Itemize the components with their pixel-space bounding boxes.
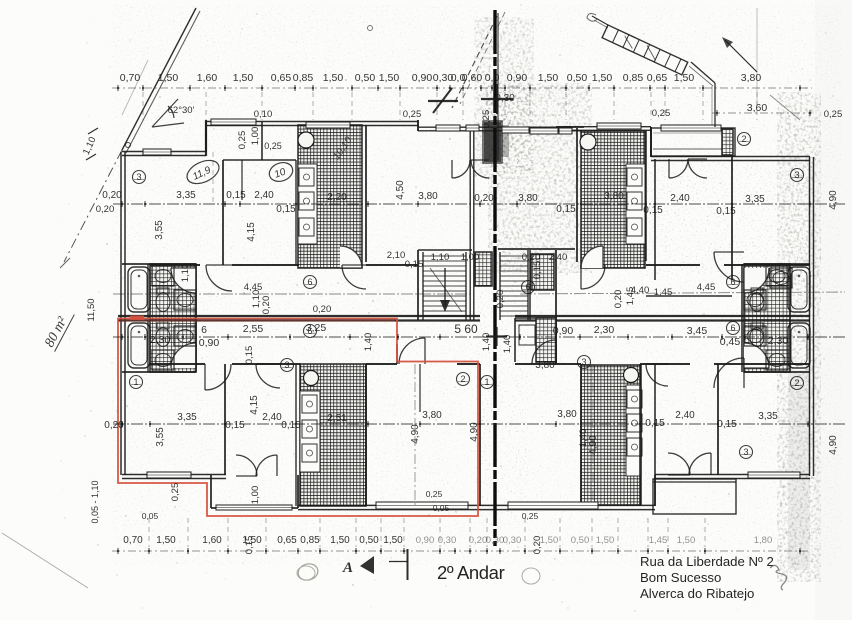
svg-text:1,50: 1,50 (323, 72, 344, 84)
svg-text:3,35: 3,35 (758, 411, 778, 422)
svg-text:4,90: 4,90 (410, 424, 421, 444)
svg-text:0,15: 0,15 (405, 259, 424, 270)
svg-text:1: 1 (133, 377, 138, 387)
svg-text:1,50: 1,50 (538, 72, 559, 84)
svg-text:0,20: 0,20 (102, 190, 122, 201)
svg-text:1,00: 1,00 (250, 127, 261, 146)
svg-text:1,50: 1,50 (330, 535, 350, 546)
svg-text:6: 6 (525, 282, 530, 292)
svg-text:0,25: 0,25 (652, 108, 671, 119)
svg-text:0,15: 0,15 (276, 204, 296, 215)
svg-text:4,90: 4,90 (469, 422, 480, 442)
svg-text:3,55: 3,55 (154, 220, 165, 240)
svg-text:2,20: 2,20 (327, 192, 347, 203)
svg-text:3,80: 3,80 (741, 72, 762, 84)
svg-text:2: 2 (741, 134, 746, 144)
svg-text:3,55: 3,55 (155, 427, 166, 447)
svg-text:0,25: 0,25 (481, 110, 492, 129)
svg-text:2,30: 2,30 (150, 334, 171, 346)
svg-text:0,45: 0,45 (720, 336, 741, 348)
svg-text:2,40: 2,40 (262, 412, 282, 423)
svg-text:0,20: 0,20 (96, 204, 115, 215)
svg-text:1,80: 1,80 (754, 535, 773, 546)
svg-text:1,50: 1,50 (674, 72, 695, 84)
svg-text:1,50: 1,50 (592, 72, 613, 84)
svg-text:Alverca do Ribatejo: Alverca do Ribatejo (640, 586, 754, 601)
svg-text:0,15: 0,15 (244, 346, 255, 365)
svg-text:2,30: 2,30 (768, 335, 789, 347)
svg-text:2,40: 2,40 (254, 190, 274, 201)
svg-text:2º Andar: 2º Andar (437, 562, 505, 583)
svg-text:0,90: 0,90 (416, 535, 435, 546)
svg-text:3,80: 3,80 (418, 191, 438, 202)
svg-text:2: 2 (794, 378, 799, 388)
svg-text:0,15: 0,15 (244, 536, 255, 555)
svg-text:0,20: 0,20 (313, 304, 332, 315)
svg-text:0,90: 0,90 (507, 72, 528, 84)
svg-text:0,20: 0,20 (104, 420, 124, 431)
svg-text:0,25: 0,25 (237, 131, 248, 150)
svg-text:4,45: 4,45 (697, 282, 716, 293)
svg-text:0,15: 0,15 (281, 420, 301, 431)
svg-text:A: A (342, 560, 353, 576)
svg-text:0,50: 0,50 (359, 535, 379, 546)
svg-text:1,40: 1,40 (363, 333, 374, 352)
svg-text:0,25: 0,25 (522, 511, 539, 521)
svg-text:0,70: 0,70 (123, 535, 143, 546)
svg-text:0,85: 0,85 (623, 72, 644, 84)
svg-text:2,55: 2,55 (243, 323, 264, 335)
svg-text:3,80: 3,80 (535, 360, 555, 371)
svg-text:1,10: 1,10 (431, 252, 450, 263)
svg-text:2,30: 2,30 (594, 324, 615, 336)
svg-text:6: 6 (730, 277, 735, 287)
svg-text:3,35: 3,35 (745, 194, 765, 205)
svg-text:0,50: 0,50 (355, 72, 376, 84)
svg-text:1,60: 1,60 (197, 72, 218, 84)
svg-text:0,15: 0,15 (556, 204, 576, 215)
svg-text:3,80: 3,80 (604, 191, 624, 202)
svg-text:Rua da Liberdade Nº 2: Rua da Liberdade Nº 2 (640, 554, 774, 569)
svg-text:3: 3 (136, 172, 141, 182)
svg-text:0,15: 0,15 (225, 420, 245, 431)
svg-text:3,35: 3,35 (176, 190, 196, 201)
svg-text:0,05: 0,05 (142, 511, 159, 521)
svg-text:0,60: 0,60 (462, 72, 483, 84)
svg-text:1,60: 1,60 (202, 535, 222, 546)
svg-text:0,30: 0,30 (486, 535, 505, 546)
svg-text:1,00: 1,00 (250, 486, 261, 505)
svg-text:11,50: 11,50 (86, 298, 97, 321)
svg-text:2,40: 2,40 (670, 193, 690, 204)
svg-text:0,85: 0,85 (293, 72, 314, 84)
svg-text:3: 3 (581, 357, 586, 367)
svg-text:1,00: 1,00 (461, 252, 480, 263)
svg-text:0,20: 0,20 (261, 296, 272, 315)
svg-text:0,25: 0,25 (170, 483, 181, 502)
svg-text:0,20: 0,20 (613, 290, 624, 309)
svg-text:1,50: 1,50 (156, 535, 176, 546)
svg-text:1,50: 1,50 (233, 72, 254, 84)
svg-text:1,50: 1,50 (596, 535, 615, 546)
svg-text:0,50: 0,50 (567, 72, 588, 84)
svg-text:0,15: 0,15 (226, 190, 246, 201)
svg-text:0,15: 0,15 (532, 261, 543, 280)
svg-text:1,50: 1,50 (379, 72, 400, 84)
svg-text:0,90: 0,90 (199, 337, 220, 349)
svg-text:1,50: 1,50 (158, 72, 179, 84)
svg-text:2,10: 2,10 (387, 250, 406, 261)
svg-text:0,50: 0,50 (571, 535, 590, 546)
svg-text:6: 6 (730, 323, 735, 333)
svg-text:0,20: 0,20 (474, 193, 494, 204)
svg-text:4,15: 4,15 (249, 395, 260, 415)
svg-text:4,90: 4,90 (828, 190, 839, 210)
svg-text:4,50: 4,50 (395, 180, 406, 200)
svg-text:0,20: 0,20 (532, 536, 543, 555)
svg-text:4,15: 4,15 (246, 222, 257, 242)
svg-text:1: 1 (484, 377, 489, 387)
svg-text:3: 3 (794, 170, 799, 180)
svg-text:2,51: 2,51 (327, 413, 347, 424)
svg-text:0,65: 0,65 (647, 72, 668, 84)
svg-text:3,35: 3,35 (177, 412, 197, 423)
svg-text:6: 6 (201, 324, 207, 336)
svg-text:1,40: 1,40 (578, 429, 589, 448)
svg-text:3,80: 3,80 (557, 409, 577, 420)
svg-text:3: 3 (284, 360, 289, 370)
svg-text:3,80: 3,80 (518, 193, 538, 204)
svg-text:0,65: 0,65 (271, 72, 292, 84)
svg-text:0,20: 0,20 (469, 535, 488, 546)
svg-text:1,40: 1,40 (481, 333, 492, 352)
svg-text:3,80: 3,80 (422, 410, 442, 421)
svg-text:Bom Sucesso: Bom Sucesso (640, 570, 721, 585)
svg-text:0,30: 0,30 (503, 535, 522, 546)
svg-text:5 60: 5 60 (454, 322, 478, 336)
svg-text:1,10: 1,10 (180, 264, 191, 283)
svg-text:0,70: 0,70 (120, 72, 141, 84)
svg-text:0,25: 0,25 (426, 489, 443, 499)
svg-text:2,40: 2,40 (549, 252, 568, 263)
svg-text:0,30: 0,30 (438, 535, 457, 546)
svg-text:0,0: 0,0 (485, 72, 500, 84)
svg-text:1,45: 1,45 (649, 535, 668, 546)
svg-text:4,90: 4,90 (828, 435, 839, 455)
svg-text:0,15: 0,15 (716, 206, 736, 217)
svg-text:6: 6 (307, 277, 312, 287)
svg-text:2: 2 (460, 374, 465, 384)
svg-text:0,05 - 1,10: 0,05 - 1,10 (90, 480, 100, 523)
svg-text:1,40: 1,40 (502, 335, 513, 354)
svg-text:0,90: 0,90 (412, 72, 433, 84)
svg-text:3,45: 3,45 (687, 325, 708, 337)
svg-text:6: 6 (307, 326, 312, 336)
svg-text:0,25: 0,25 (403, 109, 422, 120)
svg-text:0,15: 0,15 (717, 419, 737, 430)
svg-text:0,25: 0,25 (824, 109, 843, 120)
svg-text:1,50: 1,50 (677, 535, 696, 546)
svg-text:0,65: 0,65 (277, 535, 297, 546)
svg-text:4,90: 4,90 (588, 435, 599, 455)
svg-text:0,05: 0,05 (433, 503, 450, 513)
svg-text:1,50: 1,50 (383, 535, 403, 546)
svg-text:0,25: 0,25 (264, 141, 282, 151)
svg-text:0,10: 0,10 (254, 109, 273, 120)
svg-text:0,85: 0,85 (300, 535, 320, 546)
svg-text:0,20: 0,20 (495, 290, 506, 309)
svg-text:2,40: 2,40 (675, 410, 695, 421)
svg-text:1,45: 1,45 (625, 287, 636, 306)
svg-text:3: 3 (743, 447, 748, 457)
